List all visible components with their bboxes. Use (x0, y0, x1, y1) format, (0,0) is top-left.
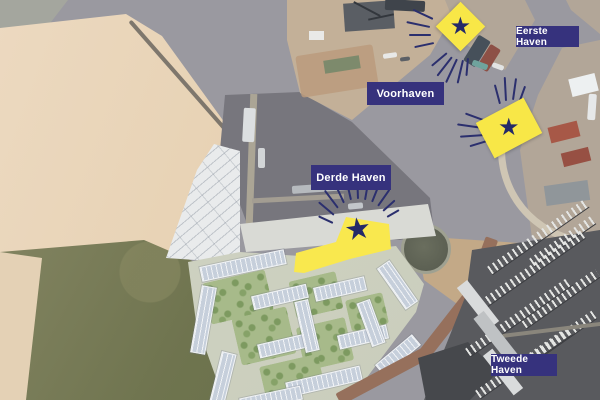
label-tweede-haven: Tweede Haven (491, 354, 557, 376)
label-text: Eerste Haven (516, 26, 579, 48)
star-icon: ★ (450, 14, 472, 38)
label-text: Tweede Haven (491, 354, 557, 376)
label-voorhaven: Voorhaven (367, 82, 444, 105)
label-derde-haven: Derde Haven (311, 165, 391, 190)
label-text: Derde Haven (316, 172, 385, 184)
label-text: Voorhaven (377, 88, 435, 100)
star-icon: ★ (338, 210, 379, 251)
ship (242, 108, 256, 143)
star-icon: ★ (498, 116, 520, 140)
ship (258, 148, 265, 168)
harbor-aerial-map: ★ ★ ★ Eerste Haven Voorhaven (0, 0, 600, 400)
building (309, 31, 324, 40)
ship (385, 0, 426, 12)
label-eerste-haven: Eerste Haven (516, 26, 579, 47)
